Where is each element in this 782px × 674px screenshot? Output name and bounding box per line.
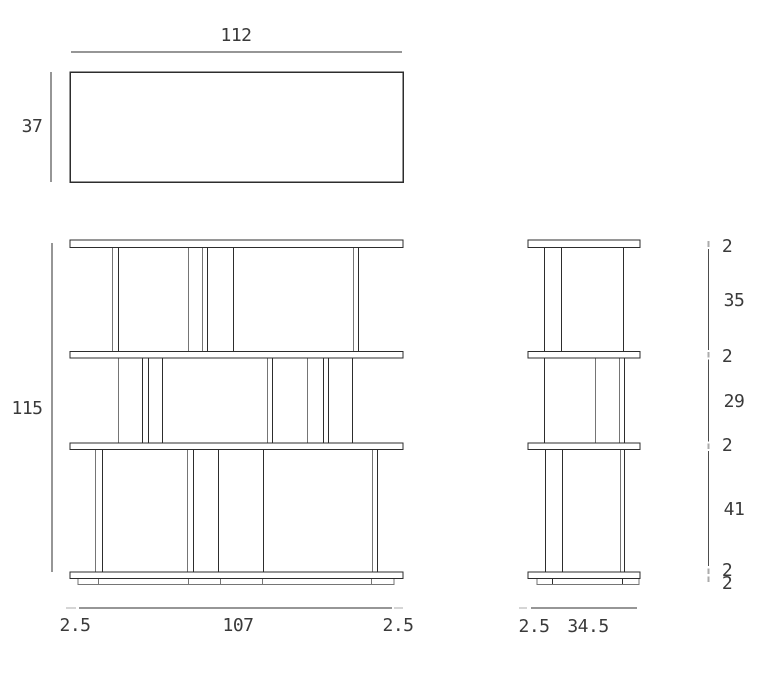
technical-drawing: 112 37 115 2.5 107 2.5 2.5 34.5 2 35 2 2… [0,0,782,674]
dim-label-front-center: 107 [222,617,253,635]
dim-label-top-depth: 37 [22,118,43,136]
front-plinth [78,579,394,585]
side-dividers-middle [545,358,625,443]
dim-label-side-left: 2.5 [518,618,549,636]
drawing-canvas [0,0,782,674]
dim-label-right-3: 29 [724,393,745,411]
dim-label-right-1: 35 [724,292,745,310]
side-dividers-lower [546,450,625,573]
dim-label-right-0: 2 [722,238,732,256]
dim-label-front-right: 2.5 [382,617,413,635]
side-dividers-upper [545,247,624,352]
dim-label-right-4: 2 [722,437,732,455]
dim-label-right-7: 2 [722,575,732,593]
dim-label-side-depth: 34.5 [567,618,608,636]
side-view [519,240,709,608]
dim-label-right-2: 2 [722,348,732,366]
front-view [52,240,403,608]
front-dividers-upper [113,247,359,352]
top-view-outline [70,72,403,182]
front-dividers-lower [96,450,378,573]
dim-label-front-left: 2.5 [59,617,90,635]
dim-label-front-height: 115 [11,400,42,418]
top-view [51,52,403,182]
dim-label-right-5: 41 [724,501,745,519]
dim-label-top-width: 112 [220,27,251,45]
front-dividers-middle [119,358,353,443]
